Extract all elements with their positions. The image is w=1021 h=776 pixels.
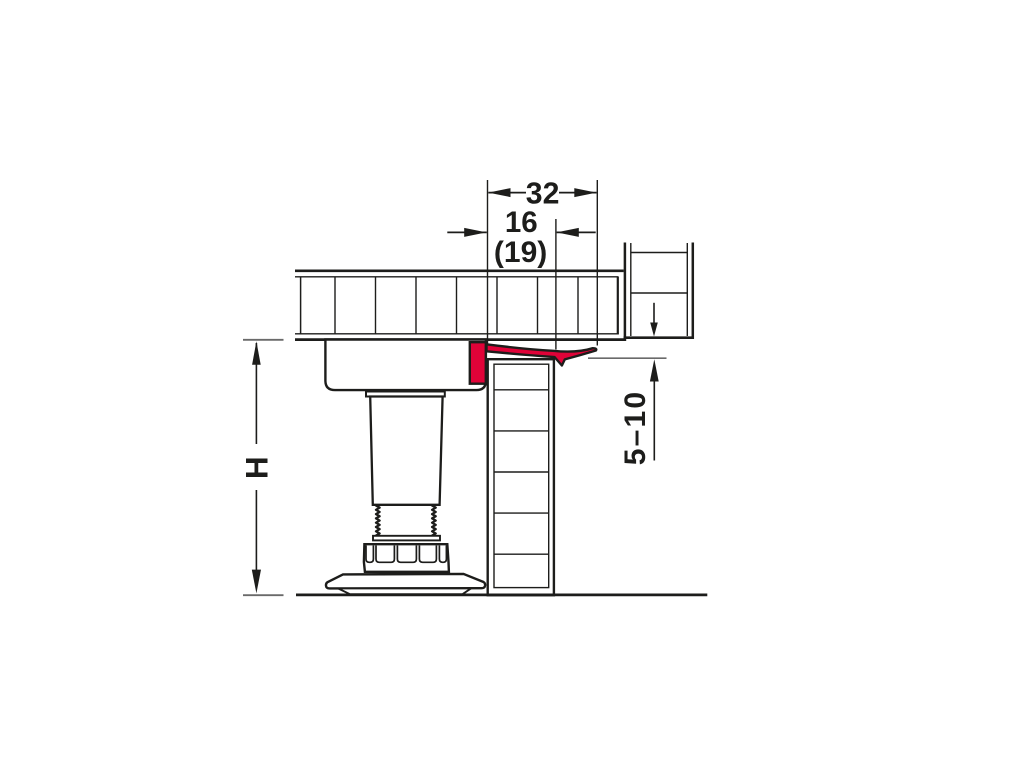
svg-text:H: H [239, 456, 275, 479]
svg-text:5–10: 5–10 [619, 390, 652, 466]
svg-text:(19): (19) [494, 236, 547, 269]
svg-text:16: 16 [505, 206, 538, 239]
